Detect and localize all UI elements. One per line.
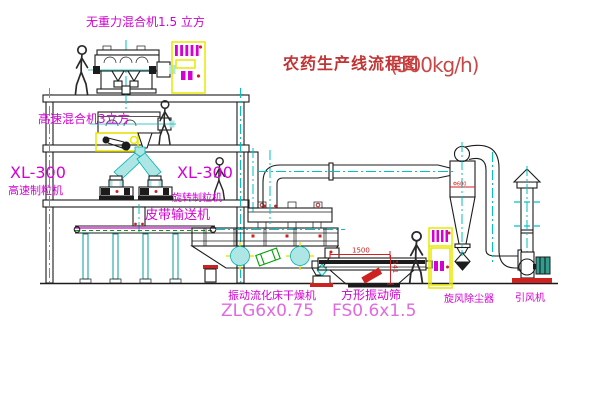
title-capacity: (500kg/h): [390, 53, 479, 77]
cad-flow-diagram: 无重力混合机1.5 立方 高速混合机3立方 XL-300 高速制粒机 XL-30…: [0, 0, 600, 403]
label-granulator-left-name: 高速制粒机: [8, 183, 63, 197]
fluid-bed-dryer: [192, 202, 345, 287]
person-ground: [410, 232, 423, 283]
drawing-title: 农药生产线流程图 (500kg/h): [282, 53, 479, 77]
label-granulator-mid-name: 旋转制粒机: [172, 191, 222, 204]
person-top-floor: [76, 46, 88, 94]
label-gravity-mixer: 无重力混合机1.5 立方: [86, 14, 205, 29]
granulator-left: [99, 176, 134, 200]
label-high-speed-mixer: 高速混合机3立方: [38, 111, 130, 126]
granulator-mid: [138, 176, 173, 200]
dim-screen-height: 541: [391, 260, 399, 273]
cyclone-separator: [450, 142, 475, 270]
label-cyclone-name: 旋风除尘器: [444, 292, 494, 305]
drop-duct: [133, 204, 145, 233]
label-dryer-model: ZLG6x0.75: [221, 301, 314, 321]
label-fan-name: 引风机: [515, 291, 545, 304]
label-granulator-mid-model: XL-300: [177, 163, 233, 182]
dim-cyclone-diameter: Φ600: [453, 182, 466, 188]
control-cabinet-right: [429, 228, 452, 288]
label-granulator-left-model: XL-300: [10, 163, 66, 182]
dim-screen-length: 1500: [352, 247, 370, 255]
induced-draft-fan: [512, 250, 552, 283]
exhaust-duct: [258, 150, 456, 224]
label-screen-model: FS0.6x1.5: [332, 301, 416, 321]
drawing-svg: 无重力混合机1.5 立方 高速混合机3立方 XL-300 高速制粒机 XL-30…: [0, 0, 600, 403]
label-screen-name: 方形振动筛: [341, 287, 401, 302]
belt-conveyor: [74, 226, 216, 283]
control-cabinet-top: [172, 42, 205, 93]
green-cylinder-detail: [256, 248, 280, 266]
label-dryer-name: 振动流化床干燥机: [228, 288, 316, 302]
label-belt-conveyor: 皮带输送机: [145, 207, 210, 223]
